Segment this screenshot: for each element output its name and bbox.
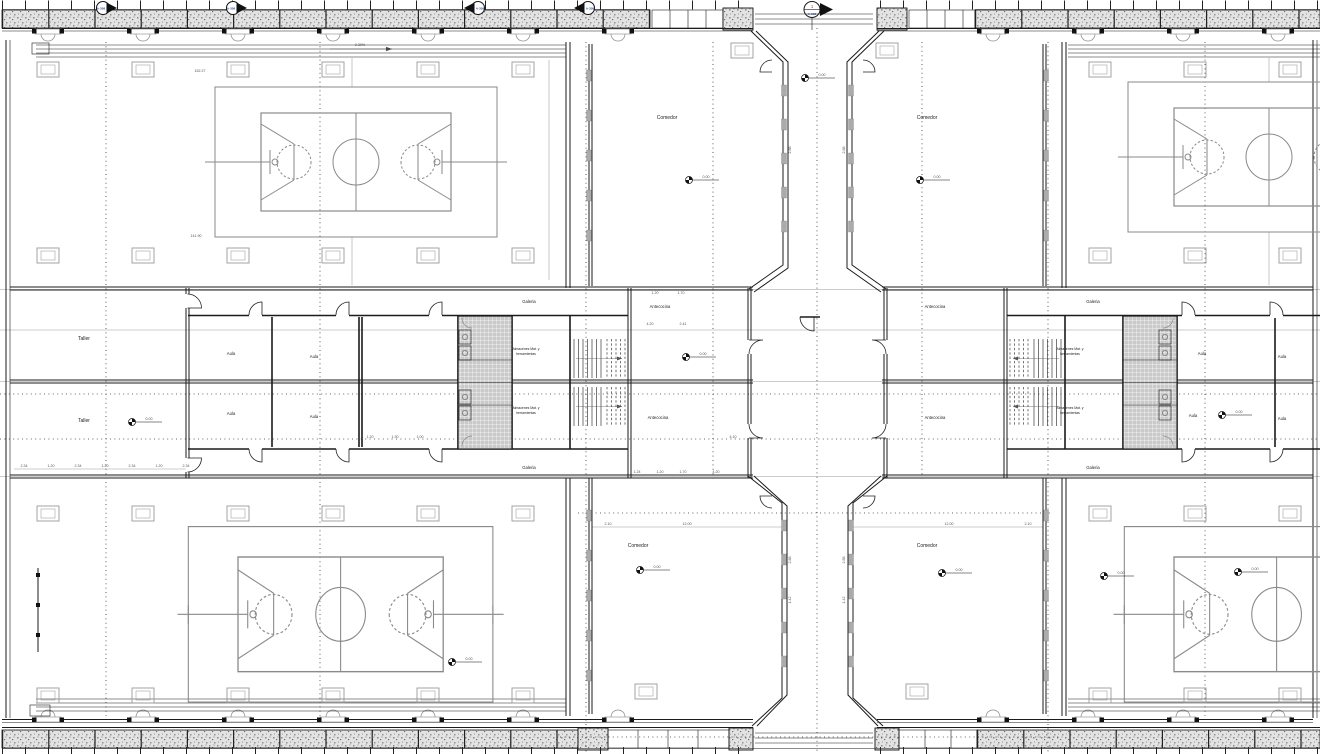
grid-lines — [0, 28, 1320, 754]
room-label-galeria: Galeria — [1086, 465, 1100, 470]
dim-label: 2.88 — [842, 147, 846, 154]
bottom-wall-band — [2, 710, 1320, 751]
toilet-block-left — [458, 316, 512, 449]
level-value: 0.00 — [703, 175, 710, 179]
room-label-antecocina: Antecocina — [925, 304, 946, 309]
room-label-aula: Aula — [227, 411, 236, 416]
sports-hall-bottom-right — [1068, 527, 1320, 711]
level-value: 0.00 — [1236, 410, 1243, 414]
room-label-comedor: Comedor — [628, 543, 649, 549]
room-label-almacenes: Almacenes Mat. y — [1057, 347, 1084, 351]
dim-label: 2.88 — [788, 147, 792, 154]
level-value: 0.00 — [934, 175, 941, 179]
room-label-taller: Taller — [78, 418, 90, 424]
dimension-labels: 152.27 141.90 2.34 1.20 2.34 1.20 2.34 1… — [21, 69, 1032, 604]
dim-label: 2.88 — [842, 557, 846, 564]
dim-label: 1.24 — [634, 470, 641, 474]
dim-label: 1.30 — [392, 435, 399, 439]
dim-label: 1.70 — [678, 291, 685, 295]
room-label-almacenes: herramientas — [516, 411, 536, 415]
level-value: 0.00 — [956, 568, 963, 572]
room-label-almacenes: Almacenes Mat. y — [513, 347, 540, 351]
toilet-block-right — [1123, 316, 1177, 449]
dim-label: 2.34 — [129, 464, 136, 468]
section-ref-label: A-308 — [97, 7, 106, 11]
dim-label: 12.00 — [683, 522, 692, 526]
dim-label: 1.20 — [367, 435, 374, 439]
level-value: 0.00 — [466, 657, 473, 661]
skylights — [37, 43, 1301, 703]
room-label-almacenes: Almacenes Mat. y — [513, 406, 540, 410]
dim-label: 2.41 — [680, 322, 687, 326]
room-label-aula: Aula — [1198, 351, 1207, 356]
room-label-aula: Aula — [1189, 413, 1198, 418]
dim-label: 2.34 — [75, 464, 82, 468]
dim-label: 1.42 — [788, 597, 792, 604]
dim-label: 1.20 — [156, 464, 163, 468]
dim-label: 1.42 — [842, 597, 846, 604]
dim-label: 4.10 — [730, 435, 737, 439]
section-ref-label: A-308 — [476, 7, 485, 11]
section-circle-marker: 1 A-308 — [804, 2, 833, 31]
section-ref-label: A-308 — [808, 12, 817, 16]
level-value: 0.00 — [654, 565, 661, 569]
sports-hall-top-right — [1068, 45, 1320, 232]
room-labels: Comedor Comedor Comedor Comedor Taller T… — [78, 115, 1287, 549]
dim-label: 4.20 — [713, 470, 720, 474]
room-label-almacenes: herramientas — [1060, 411, 1080, 415]
dim-label: 1.20 — [657, 470, 664, 474]
dim-label: 1.00 — [417, 435, 424, 439]
dim-label: 2.88 — [788, 557, 792, 564]
dim-label: 4.20 — [647, 322, 654, 326]
level-value: 0.00 — [819, 73, 826, 77]
room-label-galeria: Galeria — [1086, 299, 1100, 304]
dim-label: 141.90 — [191, 234, 202, 238]
doors — [186, 60, 1284, 508]
room-label-aula: Aula — [1278, 354, 1287, 359]
dim-label: 2.34 — [21, 464, 28, 468]
section-ref-label: A-308 — [227, 7, 236, 11]
room-label-aula: Aula — [1278, 416, 1287, 421]
room-label-almacenes: Almacenes Mat. y — [1057, 406, 1084, 410]
room-label-aula: Aula — [310, 354, 319, 359]
room-label-galeria: Galeria — [522, 299, 536, 304]
room-label-antecocina: Antecocina — [925, 415, 946, 420]
walls — [6, 40, 1317, 718]
room-label-comedor: Comedor — [917, 543, 938, 549]
room-label-almacenes: herramientas — [516, 352, 536, 356]
sports-hall-bottom-left — [30, 527, 566, 716]
dim-label: 2.34 — [183, 464, 190, 468]
dim-label: 12.00 — [945, 522, 954, 526]
room-label-comedor: Comedor — [917, 115, 938, 121]
dim-label: 1.20 — [652, 291, 659, 295]
top-wall-band: A-308 A-308 A-308 A-308 2.30% — [2, 2, 1320, 52]
room-label-almacenes: herramientas — [1060, 352, 1080, 356]
room-label-aula: Aula — [227, 351, 236, 356]
room-label-comedor: Comedor — [657, 115, 678, 121]
level-markers: 0.00 0.00 0.00 0.00 0.00 0.00 0.00 0.00 … — [129, 73, 1269, 666]
room-label-antecocina: Antecocina — [648, 415, 669, 420]
dim-label: 152.27 — [195, 69, 206, 73]
room-label-antecocina: Antecocina — [650, 304, 671, 309]
level-value: 0.00 — [1252, 567, 1259, 571]
level-value: 0.00 — [1118, 571, 1125, 575]
dim-label: 1.70 — [680, 470, 687, 474]
section-ref-label: A-308 — [586, 7, 595, 11]
room-label-taller: Taller — [78, 336, 90, 342]
dim-label: 2.10 — [605, 522, 612, 526]
room-label-galeria: Galeria — [522, 465, 536, 470]
level-value: 0.00 — [146, 417, 153, 421]
room-label-aula: Aula — [310, 414, 319, 419]
dim-label: 1.20 — [48, 464, 55, 468]
level-value: 0.00 — [700, 352, 707, 356]
sports-hall-top-left — [32, 43, 566, 237]
floor-plan-canvas: A-308 A-308 A-308 A-308 2.30% 1 A-308 — [0, 0, 1320, 754]
dim-label: 2.10 — [1025, 522, 1032, 526]
section-number: 1 — [811, 4, 814, 9]
dim-label: 1.20 — [102, 464, 109, 468]
comedor-window-walls — [587, 31, 1049, 726]
